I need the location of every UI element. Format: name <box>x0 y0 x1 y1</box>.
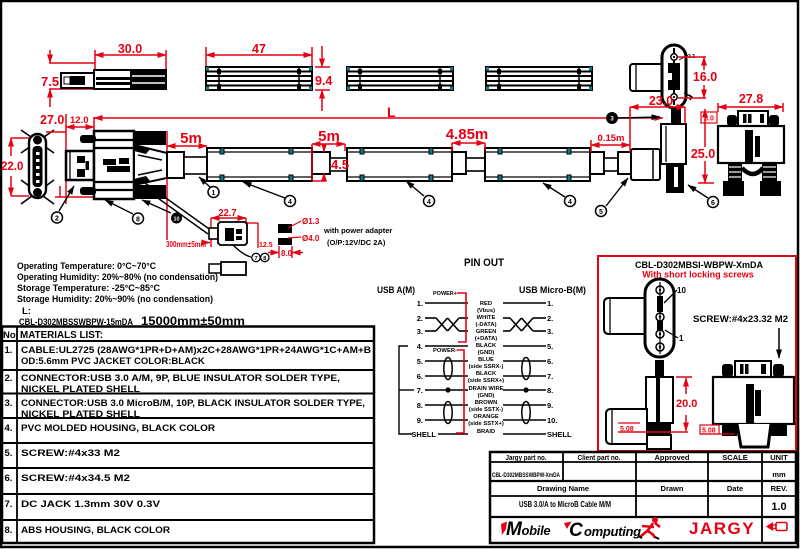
svg-text:mm: mm <box>772 470 786 479</box>
svg-text:1.: 1. <box>547 299 553 308</box>
svg-text:Drawing Name: Drawing Name <box>537 484 589 493</box>
svg-text:CONNECTOR:USB 3.0 MicroB/M, 10: CONNECTOR:USB 3.0 MicroB/M, 10P, BLACK I… <box>21 398 365 409</box>
svg-text:12.5: 12.5 <box>259 242 273 249</box>
svg-text:7.: 7. <box>547 372 553 381</box>
svg-text:27.0: 27.0 <box>40 113 64 127</box>
svg-text:12.0: 12.0 <box>70 115 89 126</box>
svg-text:BLUE: BLUE <box>478 357 494 363</box>
svg-text:BROWN: BROWN <box>475 400 498 406</box>
svg-text:1.: 1. <box>5 345 13 356</box>
svg-text:obile: obile <box>522 523 551 538</box>
svg-text:PIN OUT: PIN OUT <box>464 257 504 269</box>
svg-text:8.: 8. <box>417 401 423 410</box>
svg-text:7: 7 <box>254 256 257 262</box>
svg-text:BRAID: BRAID <box>477 429 495 435</box>
svg-text:Date: Date <box>727 484 743 493</box>
svg-text:DC JACK 1.3mm 30V 0.3V: DC JACK 1.3mm 30V 0.3V <box>21 499 161 510</box>
svg-text:3.: 3. <box>417 327 423 336</box>
svg-text:SCREW:#4x33 M2: SCREW:#4x33 M2 <box>21 448 120 459</box>
svg-text:4.5: 4.5 <box>331 157 349 172</box>
svg-text:SHELL: SHELL <box>411 430 436 439</box>
svg-text:5m: 5m <box>318 128 340 145</box>
svg-text:CABLE:UL2725 (28AWG*1PR+D+AM)x: CABLE:UL2725 (28AWG*1PR+D+AM)x2C+28AWG*1… <box>21 345 371 356</box>
svg-text:NICKEL PLATED SHELL: NICKEL PLATED SHELL <box>21 409 140 420</box>
svg-text:20.0: 20.0 <box>676 398 697 410</box>
svg-text:22.0: 22.0 <box>1 161 23 173</box>
svg-text:Ø4.0: Ø4.0 <box>302 234 320 243</box>
svg-text:SCREW:#4x34.5 M2: SCREW:#4x34.5 M2 <box>21 473 130 484</box>
svg-text:3.: 3. <box>5 398 13 409</box>
svg-text:25.0: 25.0 <box>691 147 715 161</box>
svg-text:4.85m: 4.85m <box>446 126 489 143</box>
svg-text:1: 1 <box>679 334 684 343</box>
svg-text:9.: 9. <box>547 401 553 410</box>
svg-text:30.0: 30.0 <box>118 42 142 56</box>
svg-text:L:: L: <box>22 306 31 317</box>
svg-text:BLACK: BLACK <box>476 343 497 349</box>
svg-text:CBL-D302MBSSWBPW-XmDA: CBL-D302MBSSWBPW-XmDA <box>492 472 560 479</box>
svg-text:M: M <box>506 519 523 540</box>
svg-text:4.: 4. <box>417 342 423 351</box>
svg-text:8.0: 8.0 <box>281 249 293 258</box>
svg-text:(O/P:12V/DC 2A): (O/P:12V/DC 2A) <box>327 238 386 247</box>
svg-text:8: 8 <box>136 217 140 224</box>
svg-text:10: 10 <box>173 217 179 223</box>
svg-text:JARGY: JARGY <box>689 519 755 538</box>
svg-text:(-DATA): (-DATA) <box>475 322 496 328</box>
svg-text:2.: 2. <box>5 373 13 384</box>
svg-text:10.: 10. <box>547 416 557 425</box>
svg-text:1.: 1. <box>417 299 423 308</box>
svg-text:8: 8 <box>263 256 266 262</box>
svg-text:1: 1 <box>212 190 216 197</box>
svg-text:2.: 2. <box>417 314 423 323</box>
svg-text:Storage Temperature: -25°C~85°: Storage Temperature: -25°C~85°C <box>17 283 160 294</box>
svg-text:47: 47 <box>252 42 266 56</box>
svg-text:SHELL: SHELL <box>547 430 572 439</box>
svg-text:ORANGE: ORANGE <box>473 414 499 420</box>
svg-text:omputing: omputing <box>584 524 641 539</box>
svg-text:6.: 6. <box>547 357 553 366</box>
svg-text:8.: 8. <box>5 525 13 536</box>
svg-text:C: C <box>569 520 583 541</box>
svg-text:(side SSRX-): (side SSRX-) <box>469 364 504 370</box>
svg-text:OD:5.6mm PVC JACKET COLOR:BLA: OD:5.6mm PVC JACKET COLOR:BLACK <box>21 356 205 367</box>
svg-text:MATERIALS LIST:: MATERIALS LIST: <box>20 329 103 341</box>
svg-text:23.0: 23.0 <box>649 94 673 108</box>
svg-text:PVC MOLDED HOUSING, BLACK COLO: PVC MOLDED HOUSING, BLACK COLOR <box>21 423 215 434</box>
svg-text:300mm±5mm: 300mm±5mm <box>166 240 206 249</box>
svg-text:POWER+: POWER+ <box>433 291 457 297</box>
svg-text:1.0: 1.0 <box>771 501 786 513</box>
svg-text:(GND): (GND) <box>478 350 495 356</box>
svg-text:SCREW:#4x23.32 M2: SCREW:#4x23.32 M2 <box>693 314 788 324</box>
svg-text:CBL-D302MBSI-WBPW-XmDA: CBL-D302MBSI-WBPW-XmDA <box>635 260 763 270</box>
svg-text:7.: 7. <box>417 386 423 395</box>
svg-text:7.: 7. <box>5 499 13 510</box>
svg-text:3.: 3. <box>547 327 553 336</box>
svg-text:6: 6 <box>711 200 715 207</box>
svg-text:USB 3.0/A to MicroB Cable M/M: USB 3.0/A to MicroB Cable M/M <box>519 500 611 509</box>
svg-text:4: 4 <box>427 199 431 206</box>
svg-text:(side SSTX-): (side SSTX-) <box>469 407 503 413</box>
svg-text:POWER-: POWER- <box>433 348 457 354</box>
svg-text:7.5: 7.5 <box>41 74 59 89</box>
svg-text:5.: 5. <box>417 357 423 366</box>
svg-text:6.: 6. <box>5 473 13 484</box>
svg-text:4.: 4. <box>5 423 13 434</box>
svg-text:Client part no.: Client part no. <box>578 453 621 462</box>
svg-text:8.: 8. <box>547 386 553 395</box>
svg-text:5.08: 5.08 <box>620 426 634 433</box>
svg-text:No: No <box>3 330 16 341</box>
svg-text:Approved: Approved <box>654 453 689 462</box>
svg-text:UNIT: UNIT <box>770 453 788 462</box>
svg-text:Storage Humidity: 20%~90% (no: Storage Humidity: 20%~90% (no condensati… <box>17 294 213 305</box>
svg-text:with power adapter: with power adapter <box>323 226 392 235</box>
svg-text:9.: 9. <box>417 416 423 425</box>
svg-text:NICKEL PLATED SHELL: NICKEL PLATED SHELL <box>21 384 140 395</box>
svg-text:Operating Temperature: 0°C~70°: Operating Temperature: 0°C~70°C <box>17 261 156 272</box>
svg-text:5.: 5. <box>5 448 13 459</box>
svg-text:Ø1.3: Ø1.3 <box>302 217 320 226</box>
svg-text:Operating Humidity: 20%~80% (n: Operating Humidity: 20%~80% (no condensa… <box>17 272 218 283</box>
svg-text:5m: 5m <box>180 130 202 147</box>
svg-text:ABS HOUSING, BLACK COLOR: ABS HOUSING, BLACK COLOR <box>21 525 170 536</box>
svg-text:0.15m: 0.15m <box>598 133 625 144</box>
svg-text:USB A(M): USB A(M) <box>377 285 415 296</box>
svg-text:Drawn: Drawn <box>661 484 684 493</box>
svg-text:DRAIN WIRE: DRAIN WIRE <box>468 386 503 392</box>
svg-text:5.: 5. <box>547 342 553 351</box>
svg-text:RED: RED <box>480 301 492 307</box>
svg-text:USB Micro-B(M): USB Micro-B(M) <box>519 285 586 296</box>
svg-text:BLACK: BLACK <box>476 371 497 377</box>
svg-text:16.0: 16.0 <box>693 70 717 84</box>
svg-text:9.4: 9.4 <box>315 74 332 88</box>
svg-text:2.: 2. <box>547 314 553 323</box>
svg-text:4: 4 <box>568 199 572 206</box>
svg-text:2: 2 <box>55 216 59 223</box>
svg-text:REV.: REV. <box>771 484 788 493</box>
svg-text:SCALE: SCALE <box>722 453 747 462</box>
svg-text:27.8: 27.8 <box>739 92 763 106</box>
svg-text:(side SSRX+): (side SSRX+) <box>468 378 504 384</box>
svg-text:WHITE: WHITE <box>477 315 496 321</box>
svg-text:5.0: 5.0 <box>704 116 714 123</box>
svg-text:CONNECTOR:USB 3.0 A/M, 9P, BLU: CONNECTOR:USB 3.0 A/M, 9P, BLUE INSULATO… <box>21 373 340 384</box>
svg-text:GREEN: GREEN <box>476 329 497 335</box>
svg-text:(+DATA): (+DATA) <box>475 336 498 342</box>
svg-text:10: 10 <box>677 286 686 295</box>
svg-text:6.: 6. <box>417 372 423 381</box>
svg-text:22.7: 22.7 <box>219 207 237 219</box>
svg-text:(Vbus): (Vbus) <box>477 308 495 314</box>
svg-text:Jargy part no.: Jargy part no. <box>506 453 547 462</box>
svg-text:4: 4 <box>288 199 292 206</box>
svg-text:(side SSTX+): (side SSTX+) <box>468 421 504 427</box>
svg-text:5: 5 <box>599 209 603 216</box>
svg-text:(GND): (GND) <box>478 393 495 399</box>
